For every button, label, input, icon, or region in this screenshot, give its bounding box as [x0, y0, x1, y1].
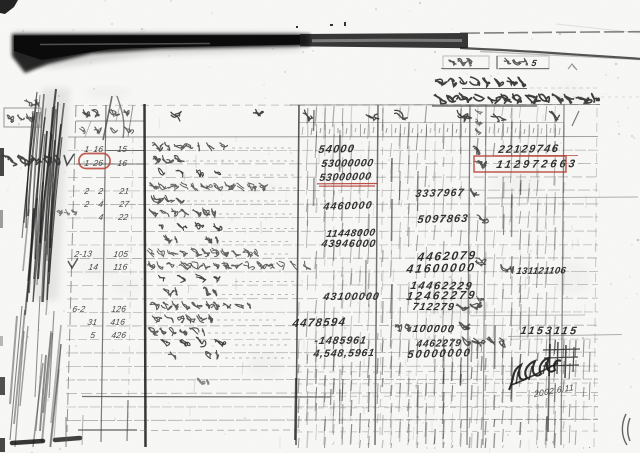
svg-text:100000: 100000 — [411, 323, 455, 335]
svg-text:5097863: 5097863 — [417, 213, 470, 226]
svg-text:4478594: 4478594 — [291, 316, 348, 330]
svg-text:426: 426 — [111, 330, 127, 340]
svg-text:41600000: 41600000 — [405, 260, 477, 276]
svg-text:43100000: 43100000 — [321, 291, 380, 303]
svg-text:105: 105 — [113, 249, 129, 259]
svg-text:3337967: 3337967 — [415, 187, 466, 200]
svg-text:131121106: 131121106 — [516, 266, 568, 277]
svg-text:14: 14 — [88, 262, 99, 272]
svg-text:43946000: 43946000 — [319, 238, 377, 250]
svg-text:15: 15 — [117, 144, 128, 154]
svg-text:2-13: 2-13 — [73, 249, 93, 259]
svg-text:16: 16 — [117, 158, 129, 168]
svg-text:22: 22 — [117, 212, 130, 222]
svg-text:416: 416 — [110, 317, 126, 327]
svg-text:31: 31 — [87, 317, 99, 327]
svg-text:6-2: 6-2 — [72, 304, 86, 314]
svg-text:116: 116 — [113, 262, 129, 272]
svg-text:712279: 712279 — [411, 301, 455, 313]
svg-text:4,548,5961: 4,548,5961 — [312, 347, 376, 360]
svg-text:4460000: 4460000 — [322, 199, 374, 213]
svg-text:21: 21 — [118, 186, 130, 196]
svg-text:53000000: 53000000 — [321, 157, 375, 170]
svg-text:50000000: 50000000 — [407, 347, 473, 361]
svg-text:26: 26 — [92, 158, 104, 168]
svg-text:54000: 54000 — [318, 143, 356, 156]
svg-text:22129746: 22129746 — [497, 143, 561, 156]
svg-text:53000000: 53000000 — [319, 171, 373, 184]
svg-text:126: 126 — [111, 304, 127, 314]
svg-text:16: 16 — [93, 144, 105, 154]
